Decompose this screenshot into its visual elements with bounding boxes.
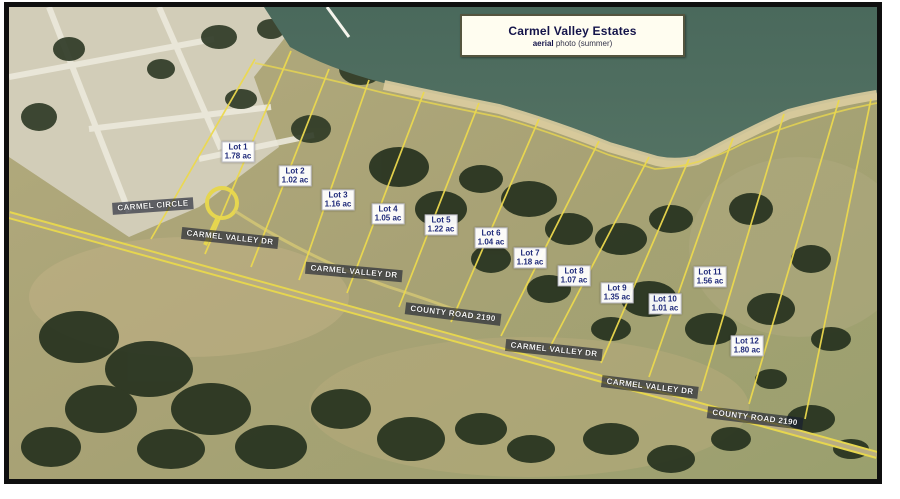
map-subtitle: aerial photo (summer) (533, 39, 613, 48)
lot-label: Lot 31.16 ac (322, 189, 355, 210)
lot-area: 1.02 ac (282, 176, 309, 185)
lot-label: Lot 61.04 ac (475, 227, 508, 248)
map-subtitle-rest: photo (summer) (554, 39, 613, 48)
map-title: Carmel Valley Estates (508, 24, 636, 38)
lot-label: Lot 51.22 ac (425, 214, 458, 235)
lot-area: 1.18 ac (517, 258, 544, 267)
lot-area: 1.35 ac (604, 293, 631, 302)
lot-area: 1.22 ac (428, 225, 455, 234)
lot-area: 1.07 ac (561, 276, 588, 285)
map-frame: Lot 11.78 acLot 21.02 acLot 31.16 acLot … (4, 2, 882, 484)
lot-area: 1.16 ac (325, 200, 352, 209)
lot-area: 1.78 ac (225, 152, 252, 161)
lot-label: Lot 81.07 ac (558, 265, 591, 286)
lot-label: Lot 111.56 ac (694, 266, 727, 287)
lot-label: Lot 21.02 ac (279, 165, 312, 186)
lot-label: Lot 101.01 ac (649, 293, 682, 314)
aerial-photo-scene: Lot 11.78 acLot 21.02 acLot 31.16 acLot … (9, 7, 877, 479)
lot-area: 1.01 ac (652, 304, 679, 313)
lot-area: 1.04 ac (478, 238, 505, 247)
lot-area: 1.05 ac (375, 214, 402, 223)
map-subtitle-bold: aerial (533, 39, 554, 48)
lot-label: Lot 11.78 ac (222, 141, 255, 162)
lot-label: Lot 41.05 ac (372, 203, 405, 224)
lot-area: 1.56 ac (697, 277, 724, 286)
aerial-plat-page: Lot 11.78 acLot 21.02 acLot 31.16 acLot … (0, 0, 900, 499)
title-box: Carmel Valley Estates aerial photo (summ… (460, 14, 685, 57)
aerial-photo-svg (9, 7, 877, 479)
lot-label: Lot 71.18 ac (514, 247, 547, 268)
lot-label: Lot 91.35 ac (601, 282, 634, 303)
lot-area: 1.80 ac (734, 346, 761, 355)
lot-label: Lot 121.80 ac (731, 335, 764, 356)
